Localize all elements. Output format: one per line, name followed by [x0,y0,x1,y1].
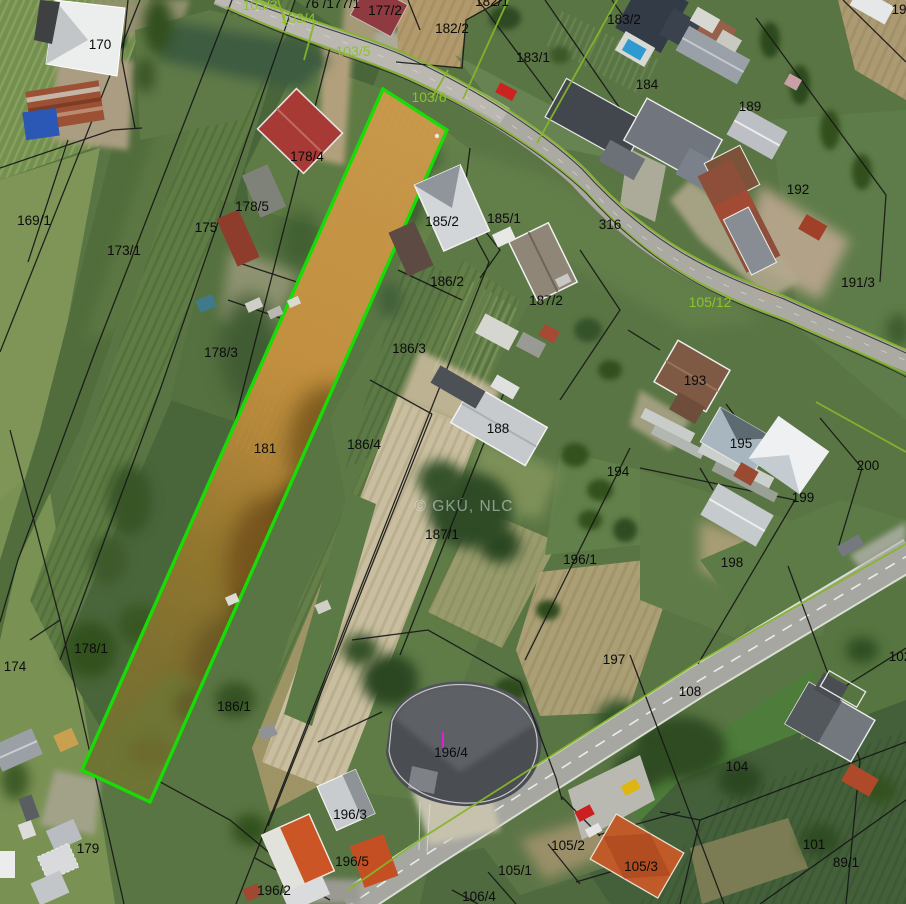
svg-text:175: 175 [195,220,218,235]
svg-text:177/2: 177/2 [368,3,402,18]
svg-text:19: 19 [891,2,906,17]
svg-text:101: 101 [803,837,826,852]
svg-text:199: 199 [792,490,815,505]
svg-text:105/3: 105/3 [624,859,658,874]
svg-text:104: 104 [726,759,749,774]
svg-text:183/2: 183/2 [607,12,641,27]
svg-text:© GKÚ, NLC: © GKÚ, NLC [415,498,514,515]
svg-text:103/6: 103/6 [411,89,446,105]
svg-text:103/5: 103/5 [335,43,370,59]
svg-text:188: 188 [487,421,510,436]
svg-text:196/3: 196/3 [333,807,367,822]
svg-text:181: 181 [254,441,277,456]
svg-text:178/1: 178/1 [74,641,108,656]
svg-text:178/4: 178/4 [290,149,324,164]
svg-text:186/4: 186/4 [347,437,381,452]
svg-text:186/3: 186/3 [392,341,426,356]
svg-text:179: 179 [77,841,100,856]
svg-text:189: 189 [739,99,762,114]
svg-text:182/2: 182/2 [435,21,469,36]
svg-text:196/5: 196/5 [335,854,369,869]
svg-text:191/3: 191/3 [841,275,875,290]
svg-text:196/4: 196/4 [434,745,468,760]
svg-text:178/3: 178/3 [204,345,238,360]
svg-text:196/1: 196/1 [563,552,597,567]
svg-text:192: 192 [787,182,810,197]
svg-text:170: 170 [89,37,112,52]
svg-text:103/4: 103/4 [280,10,315,26]
svg-text:198: 198 [721,555,744,570]
svg-text:197: 197 [603,652,626,667]
svg-text:187/2: 187/2 [529,293,563,308]
svg-text:195: 195 [730,436,753,451]
svg-text:178/5: 178/5 [235,199,269,214]
svg-text:106/4: 106/4 [462,889,496,904]
svg-text:194: 194 [607,464,630,479]
svg-text:169/1: 169/1 [17,213,51,228]
svg-text:105/2: 105/2 [551,838,585,853]
svg-text:186/2: 186/2 [430,274,464,289]
svg-text:193: 193 [684,373,707,388]
svg-text:186/1: 186/1 [217,699,251,714]
svg-text:200: 200 [857,458,880,473]
svg-text:105/1: 105/1 [498,863,532,878]
svg-text:182/1: 182/1 [475,0,509,9]
svg-text:105/12: 105/12 [689,294,732,310]
svg-text:316: 316 [599,217,622,232]
svg-text:185/2: 185/2 [425,214,459,229]
svg-text:183/1: 183/1 [516,50,550,65]
svg-text:185/1: 185/1 [487,211,521,226]
svg-text:174: 174 [4,659,27,674]
svg-text:103/3: 103/3 [242,0,277,13]
svg-text:108: 108 [679,684,702,699]
svg-text:89/1: 89/1 [833,855,859,870]
svg-text:187/1: 187/1 [425,527,459,542]
svg-text:102: 102 [889,649,906,664]
svg-text:173/1: 173/1 [107,243,141,258]
svg-text:196/2: 196/2 [257,883,291,898]
svg-text:184: 184 [636,77,659,92]
